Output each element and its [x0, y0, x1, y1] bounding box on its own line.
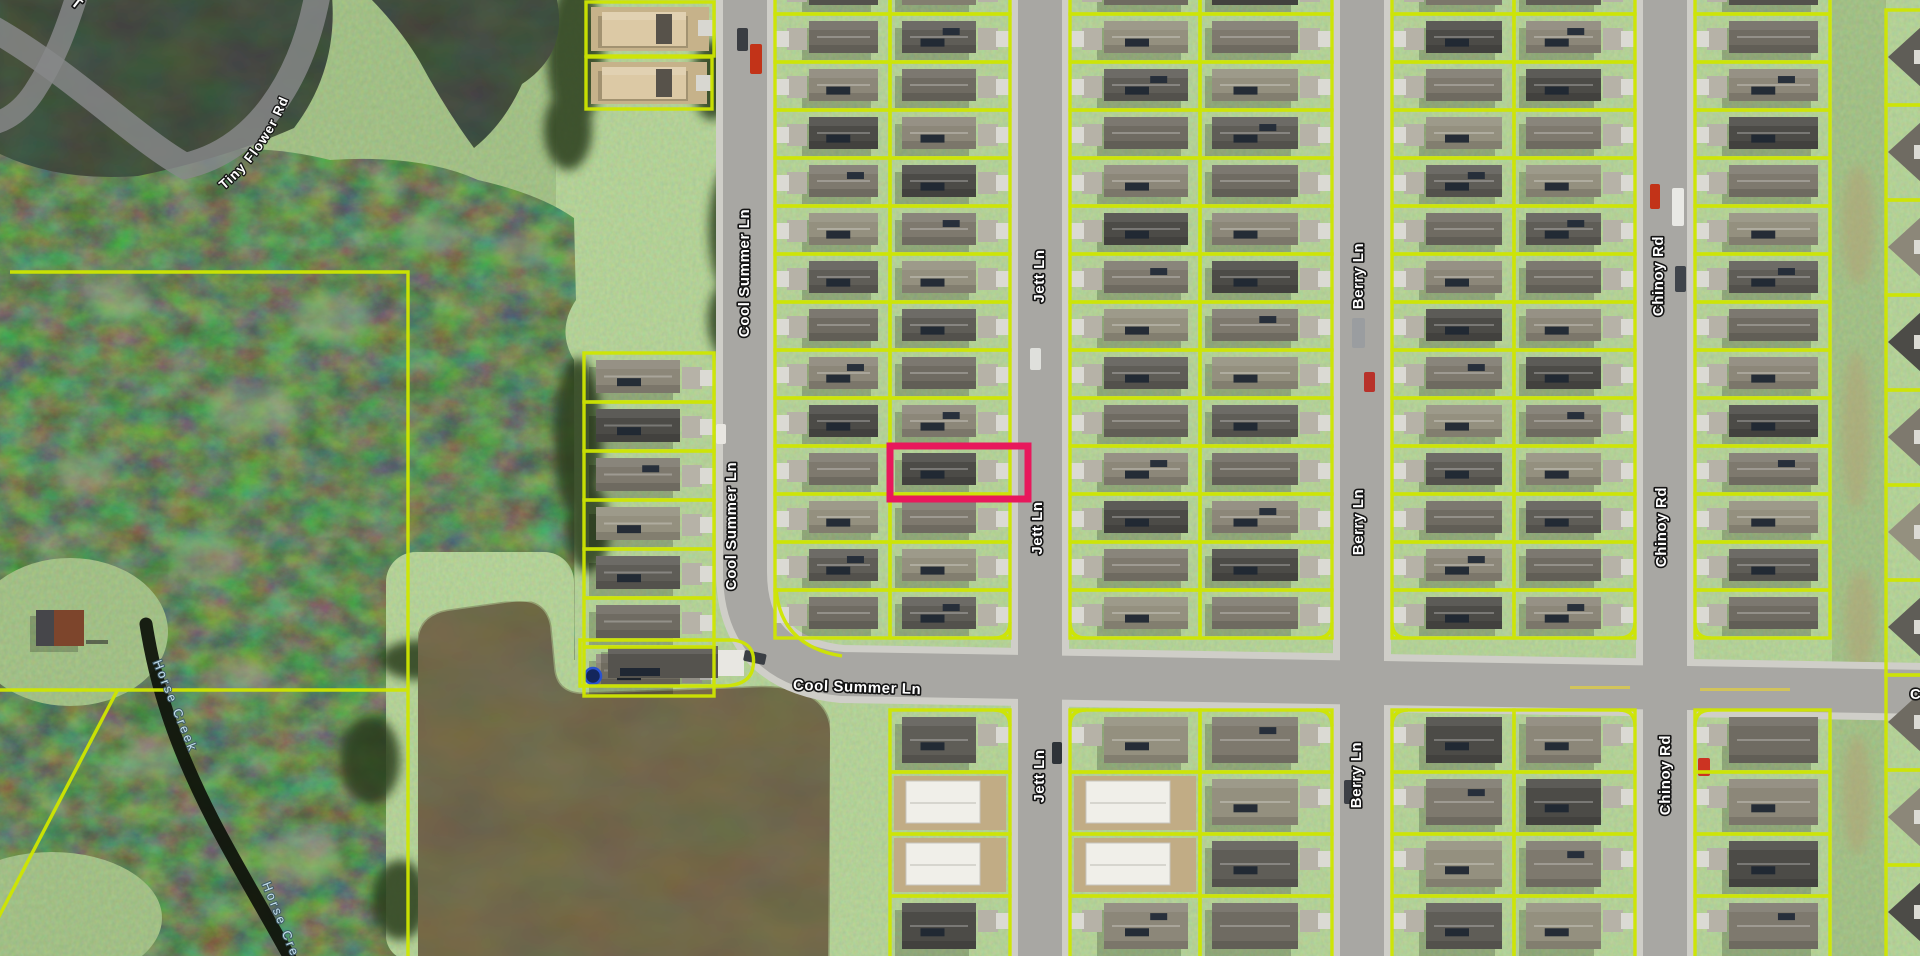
street-label-jett-ln-2: Jett Ln	[1029, 501, 1046, 554]
street-label-chinoy-rd-2: Chinoy Rd	[1653, 487, 1670, 567]
street-label-jett-ln-3: Jett Ln	[1031, 749, 1048, 802]
street-label-chinoy-rd-3: Chinoy Rd	[1657, 735, 1674, 815]
satellite-map[interactable]: Tiny Flower Rd T Cool Summer Ln Cool Sum…	[0, 0, 1920, 956]
street-label-jett-ln-1: Jett Ln	[1031, 249, 1048, 302]
center-line	[1700, 688, 1790, 691]
street-label-chinoy-rd-1: Chinoy Rd	[1650, 236, 1667, 316]
street-label-berry-ln-3: Berry Ln	[1348, 742, 1365, 809]
street-label-berry-ln-1: Berry Ln	[1350, 243, 1367, 310]
street-label-cool-summer-ln-1: Cool Summer Ln	[736, 209, 753, 337]
street-label-berry-ln-2: Berry Ln	[1350, 489, 1367, 556]
center-line	[1570, 686, 1630, 689]
street-label-cool-summer-ln-2: Cool Summer Ln	[723, 462, 740, 590]
street-label-partial-right: C	[1910, 686, 1920, 703]
